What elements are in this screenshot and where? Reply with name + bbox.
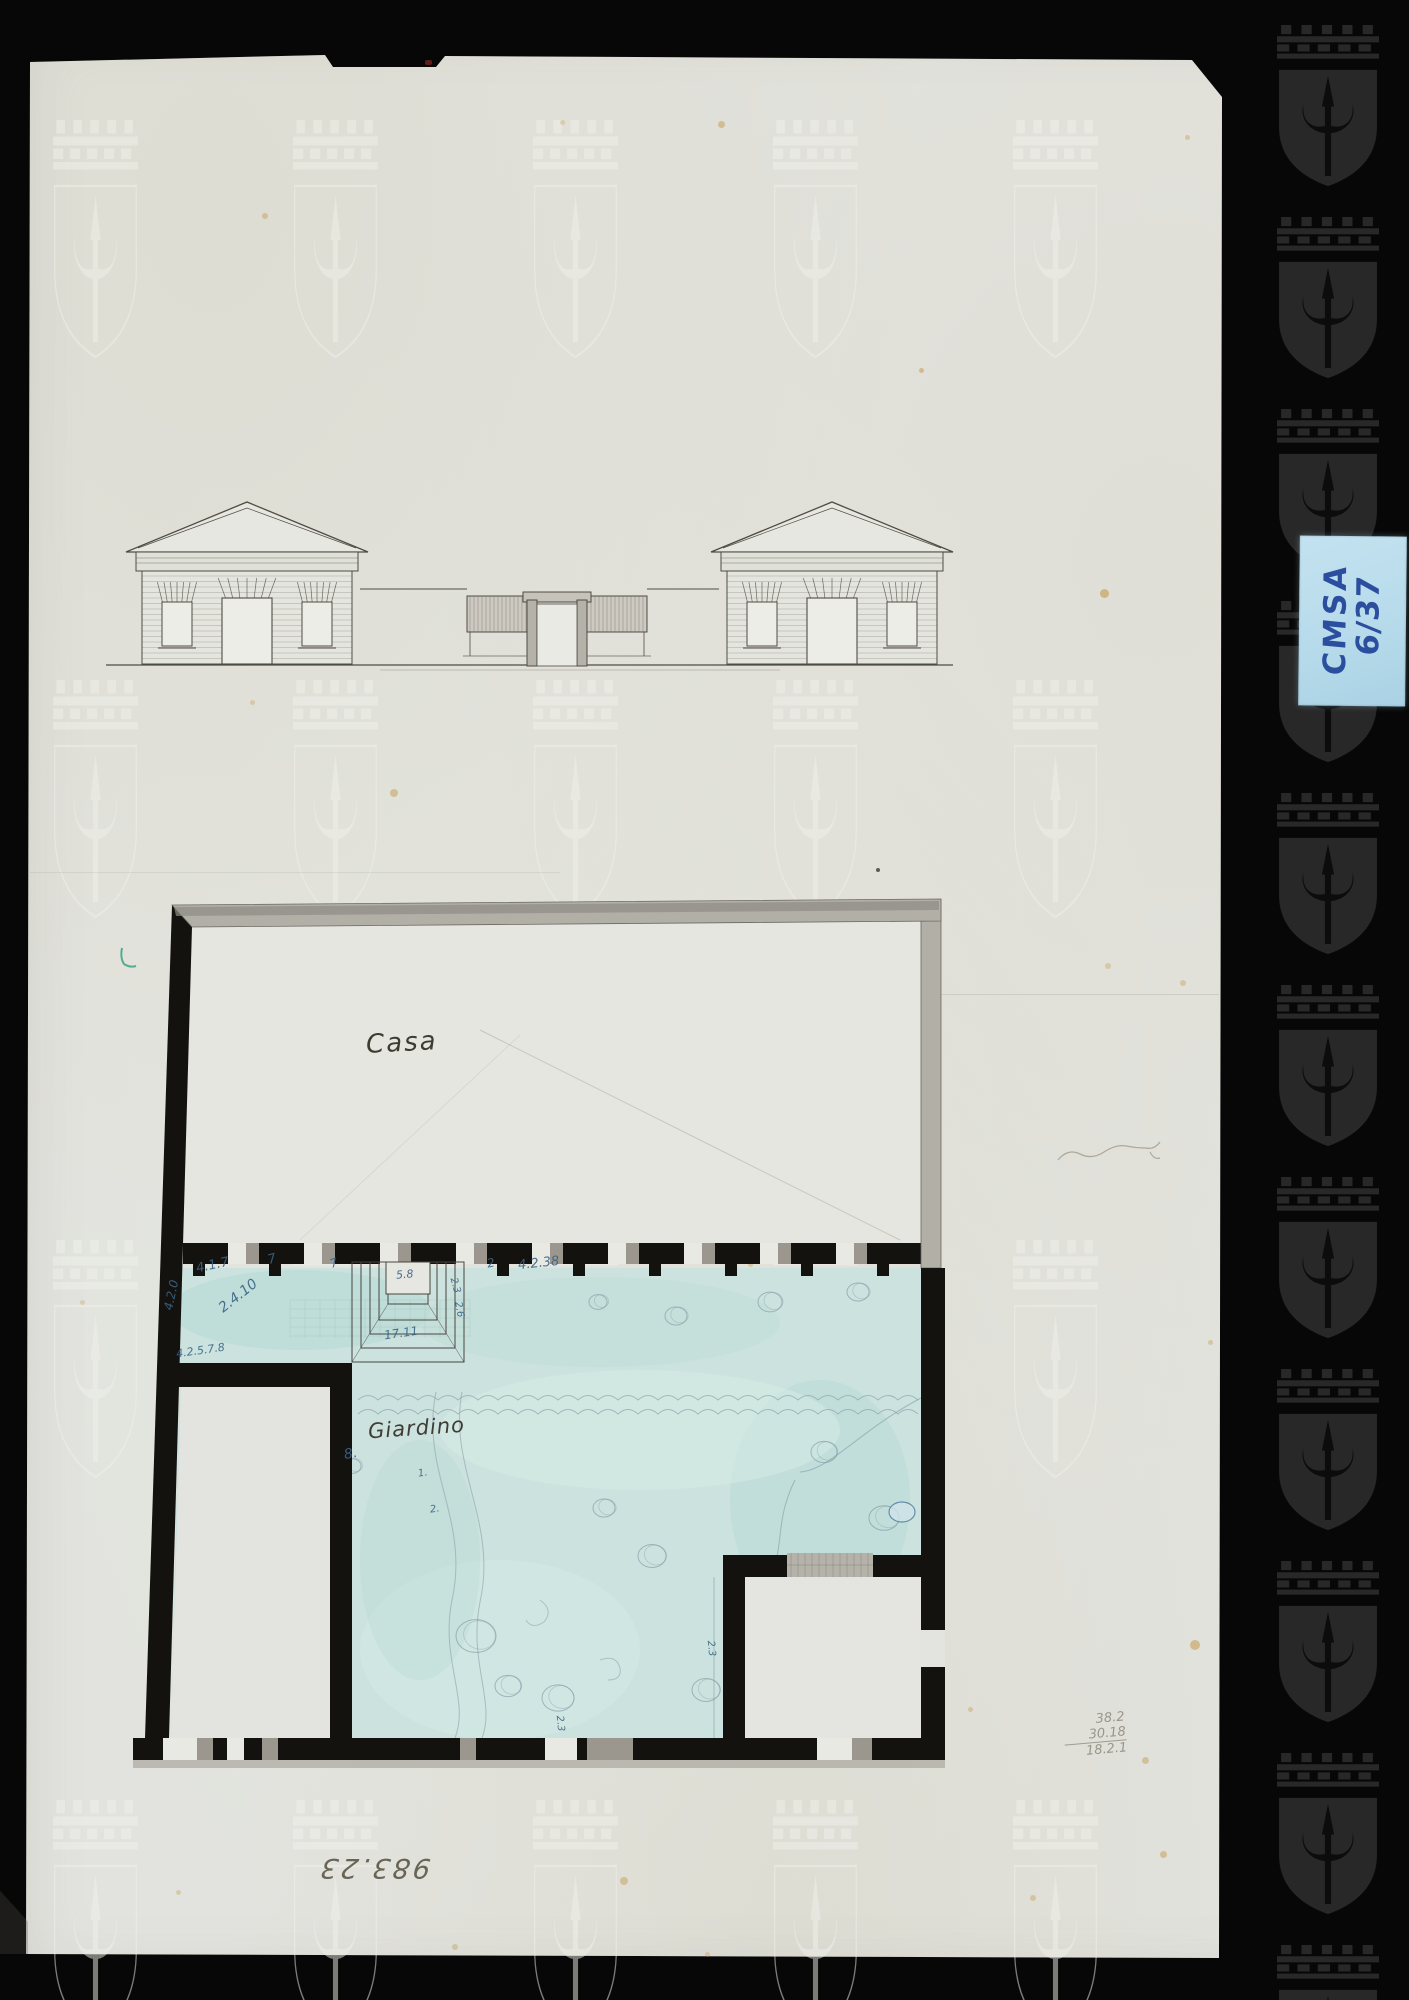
archive-code-series: CMSA	[1318, 562, 1353, 677]
archive-sticker: CMSA 6/37	[1298, 535, 1407, 706]
paper-sheet	[0, 0, 1409, 2000]
pencil-arithmetic-note: 38.2 30.18 18.2.1	[1062, 1709, 1128, 1760]
paper-edge-speck	[425, 60, 432, 65]
archive-sticker-text: CMSA 6/37	[1318, 562, 1386, 680]
paper-corner-wedge	[0, 1882, 28, 1954]
house-room-label: Casa	[365, 1026, 438, 1060]
inventory-number: 983.23	[316, 1852, 433, 1883]
scanned-document: Casa Giardino 983.23 38.2 30.18 18.2.1 4…	[0, 0, 1409, 2000]
archive-code-number: 6/37	[1352, 565, 1387, 680]
